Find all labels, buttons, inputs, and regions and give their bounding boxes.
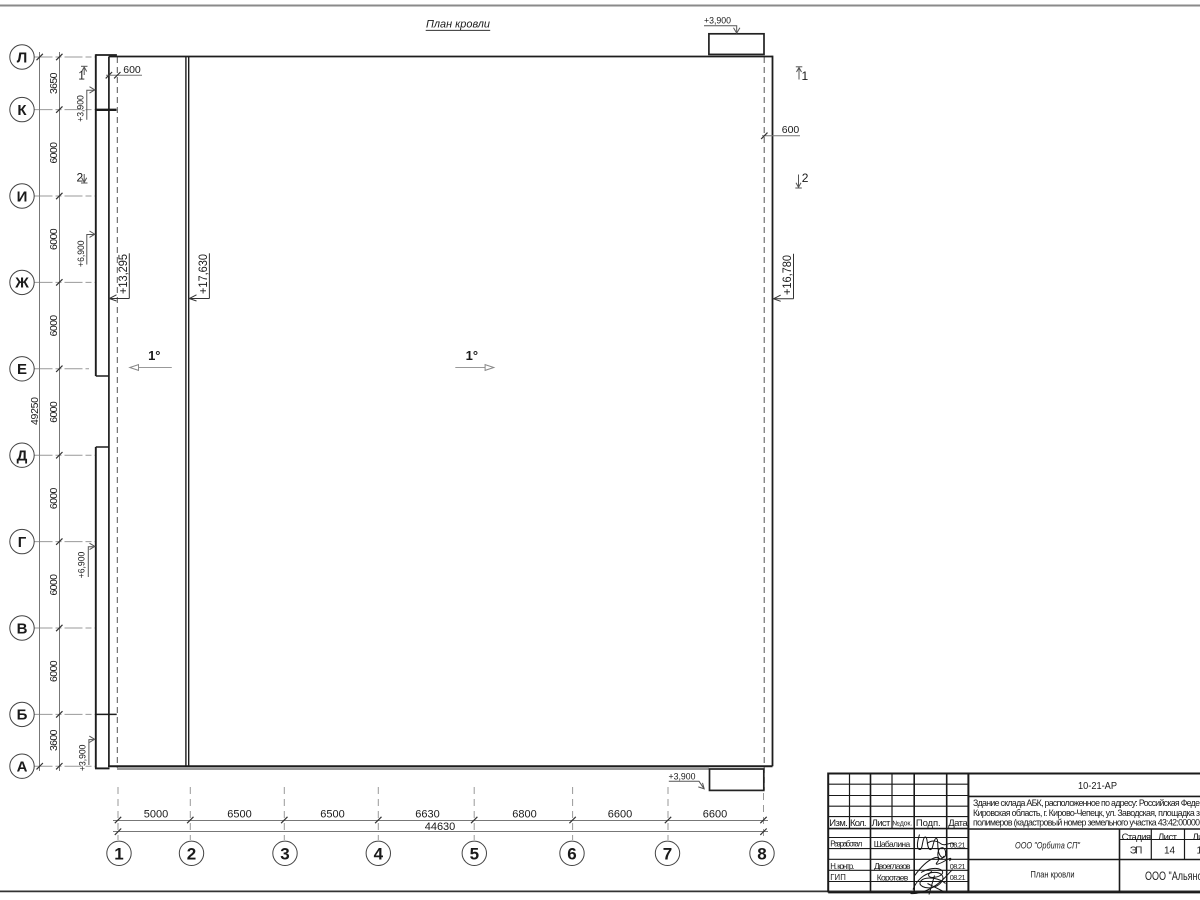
svg-text:6800: 6800 <box>512 809 536 821</box>
svg-text:10-21-АР: 10-21-АР <box>1078 781 1117 792</box>
svg-text:1: 1 <box>802 69 809 83</box>
svg-text:600: 600 <box>123 64 141 76</box>
svg-text:2: 2 <box>77 171 84 185</box>
svg-text:Кол.: Кол. <box>850 818 867 829</box>
svg-text:3650: 3650 <box>48 72 60 94</box>
svg-text:6600: 6600 <box>703 809 727 821</box>
svg-text:+3,900: +3,900 <box>669 771 696 782</box>
svg-text:полимеров (кадастровый номер з: полимеров (кадастровый номер земельного … <box>973 818 1200 828</box>
svg-text:Кировская область, г. Кирово-Ч: Кировская область, г. Кирово-Чепецк, ул.… <box>973 808 1200 818</box>
svg-text:+17,630: +17,630 <box>196 254 210 294</box>
svg-text:Лист: Лист <box>1158 832 1178 843</box>
svg-text:+3,900: +3,900 <box>76 95 87 122</box>
svg-text:Коротаев: Коротаев <box>877 872 909 882</box>
svg-text:600: 600 <box>782 124 800 136</box>
svg-text:№док.: №док. <box>892 820 912 827</box>
svg-text:49250: 49250 <box>29 397 41 425</box>
svg-text:Подп.: Подп. <box>916 818 941 829</box>
svg-text:1: 1 <box>78 69 85 83</box>
svg-text:+6,900: +6,900 <box>76 552 87 579</box>
svg-text:1°: 1° <box>148 348 160 363</box>
svg-text:ГИП: ГИП <box>830 873 846 882</box>
svg-text:Д: Д <box>17 448 28 465</box>
svg-text:17: 17 <box>1197 845 1200 856</box>
svg-text:14: 14 <box>1164 845 1175 856</box>
svg-text:2: 2 <box>802 171 809 185</box>
svg-text:Е: Е <box>17 361 27 378</box>
svg-text:Н. контр.: Н. контр. <box>830 862 854 871</box>
svg-text:6000: 6000 <box>48 660 60 682</box>
svg-text:Здание склада АБК, расположенн: Здание склада АБК, расположенное по адре… <box>973 798 1200 808</box>
svg-text:5: 5 <box>470 844 479 863</box>
svg-text:Двоеглазов: Двоеглазов <box>874 861 911 871</box>
svg-text:+6,900: +6,900 <box>76 240 87 267</box>
svg-text:3600: 3600 <box>48 729 60 751</box>
svg-text:План кровли: План кровли <box>1031 869 1075 879</box>
svg-text:6600: 6600 <box>608 809 632 821</box>
svg-text:8: 8 <box>757 844 766 863</box>
svg-text:А: А <box>17 759 28 776</box>
svg-text:Разработал: Разработал <box>830 840 862 849</box>
svg-text:1: 1 <box>114 844 123 863</box>
svg-text:6500: 6500 <box>227 809 251 821</box>
svg-text:6000: 6000 <box>48 228 60 250</box>
svg-text:Лист: Лист <box>872 818 891 829</box>
svg-text:6630: 6630 <box>415 809 439 821</box>
svg-text:+13,295: +13,295 <box>116 254 130 294</box>
svg-text:08.21: 08.21 <box>950 840 966 849</box>
svg-text:3: 3 <box>280 844 289 863</box>
svg-text:08.21: 08.21 <box>950 873 966 882</box>
svg-text:ООО "Альянс С: ООО "Альянс С <box>1145 869 1200 883</box>
svg-text:6000: 6000 <box>48 574 60 596</box>
svg-text:Л: Л <box>17 49 28 66</box>
svg-text:Стадия: Стадия <box>1122 832 1151 843</box>
svg-text:1°: 1° <box>466 348 478 363</box>
svg-text:К: К <box>17 102 27 119</box>
svg-text:6: 6 <box>567 844 576 863</box>
svg-text:Изм.: Изм. <box>829 818 848 829</box>
svg-text:И: И <box>17 188 28 205</box>
svg-text:4: 4 <box>374 844 384 863</box>
svg-text:ООО "Орбита СП": ООО "Орбита СП" <box>1015 840 1080 851</box>
svg-text:+3,900: +3,900 <box>704 16 731 27</box>
svg-text:В: В <box>17 620 28 637</box>
svg-text:Б: Б <box>17 707 28 724</box>
svg-text:Дата: Дата <box>948 818 968 829</box>
svg-text:6000: 6000 <box>48 487 60 509</box>
svg-text:Листов: Листов <box>1193 832 1200 843</box>
svg-text:Шабалина: Шабалина <box>874 839 911 849</box>
svg-text:6000: 6000 <box>48 142 60 164</box>
svg-text:6000: 6000 <box>48 401 60 423</box>
svg-text:6500: 6500 <box>320 809 344 821</box>
svg-text:+3,900: +3,900 <box>77 745 88 772</box>
svg-text:ЭП: ЭП <box>1130 845 1143 856</box>
svg-text:44630: 44630 <box>425 821 456 833</box>
svg-text:6000: 6000 <box>48 315 60 337</box>
svg-text:Ж: Ж <box>14 275 29 292</box>
svg-text:+16,780: +16,780 <box>780 255 794 295</box>
svg-text:Г: Г <box>18 534 27 551</box>
svg-text:План кровли: План кровли <box>426 19 490 31</box>
svg-text:2: 2 <box>187 844 196 863</box>
svg-text:5000: 5000 <box>144 809 168 821</box>
svg-text:7: 7 <box>663 844 672 863</box>
